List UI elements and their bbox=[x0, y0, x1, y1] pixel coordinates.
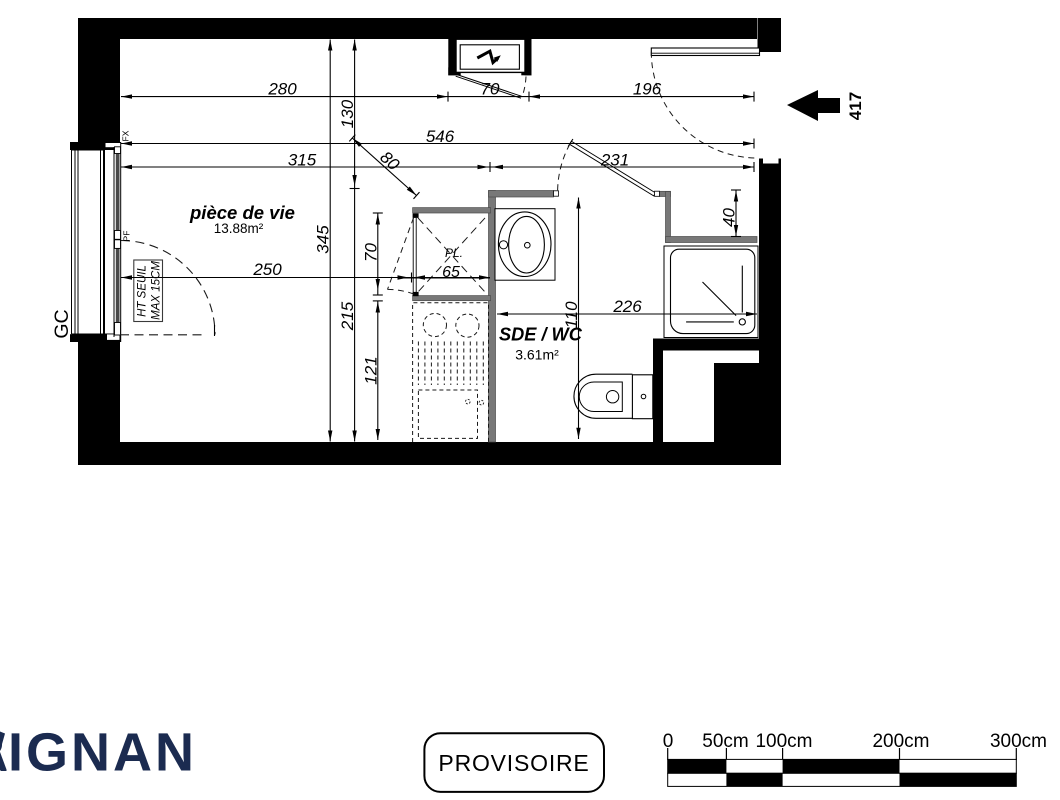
svg-text:196: 196 bbox=[633, 80, 662, 99]
svg-text:226: 226 bbox=[612, 297, 642, 316]
svg-text:40: 40 bbox=[720, 208, 739, 227]
svg-text:280: 280 bbox=[267, 80, 297, 99]
svg-text:65: 65 bbox=[442, 264, 460, 281]
svg-text:PL.: PL. bbox=[445, 246, 463, 260]
svg-text:546: 546 bbox=[426, 127, 455, 146]
svg-text:121: 121 bbox=[361, 356, 380, 384]
svg-text:70: 70 bbox=[481, 80, 500, 99]
svg-text:417: 417 bbox=[846, 92, 865, 120]
svg-text:231: 231 bbox=[600, 150, 629, 169]
svg-text:PROVISOIRE: PROVISOIRE bbox=[438, 750, 589, 776]
svg-text:215: 215 bbox=[338, 301, 357, 331]
svg-text:RIGNAN: RIGNAN bbox=[0, 723, 197, 783]
svg-text:50cm: 50cm bbox=[702, 731, 748, 752]
svg-text:70: 70 bbox=[361, 243, 380, 262]
svg-text:315: 315 bbox=[288, 150, 317, 169]
svg-text:200cm: 200cm bbox=[872, 731, 929, 752]
svg-text:PF: PF bbox=[122, 231, 132, 242]
svg-text:MAX 15CM: MAX 15CM bbox=[150, 261, 162, 320]
svg-text:SDE / WC: SDE / WC bbox=[499, 325, 583, 345]
svg-text:GC: GC bbox=[51, 309, 73, 338]
svg-text:pièce de vie: pièce de vie bbox=[189, 202, 295, 223]
svg-text:HT SEUIL: HT SEUIL bbox=[137, 265, 149, 317]
svg-text:FX: FX bbox=[121, 130, 131, 141]
svg-text:100cm: 100cm bbox=[755, 731, 812, 752]
svg-text:345: 345 bbox=[314, 225, 333, 254]
svg-text:13.88m²: 13.88m² bbox=[214, 221, 264, 236]
svg-text:130: 130 bbox=[338, 99, 357, 128]
svg-text:250: 250 bbox=[252, 260, 282, 279]
svg-text:300cm: 300cm bbox=[990, 731, 1047, 752]
svg-text:3.61m²: 3.61m² bbox=[515, 347, 559, 363]
